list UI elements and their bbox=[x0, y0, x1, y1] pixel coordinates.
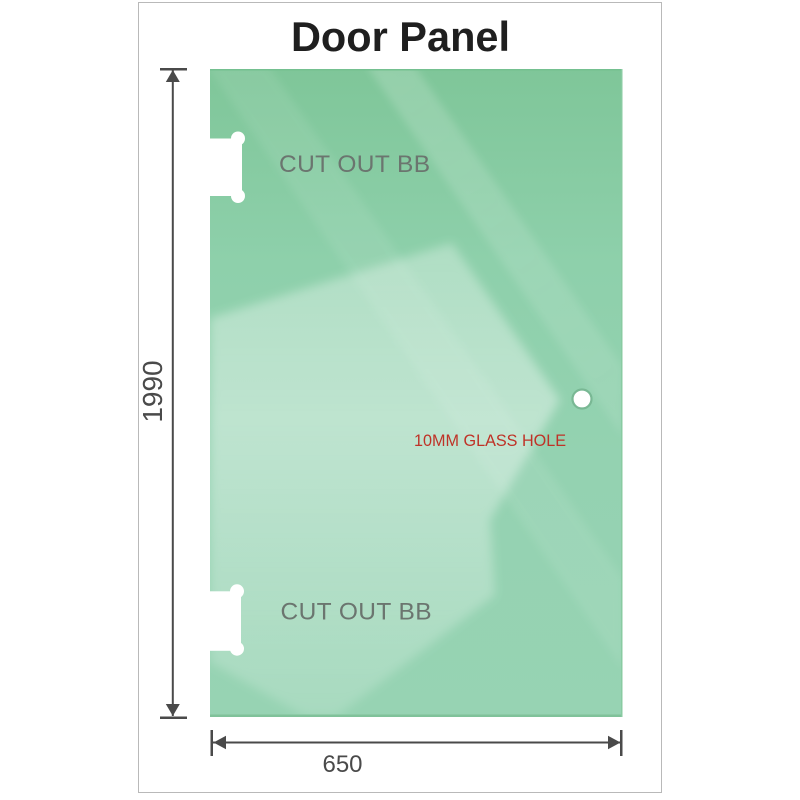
svg-text:10MM GLASS HOLE: 10MM GLASS HOLE bbox=[414, 432, 566, 450]
svg-text:CUT OUT BB: CUT OUT BB bbox=[279, 151, 430, 178]
svg-text:CUT OUT BB: CUT OUT BB bbox=[281, 599, 432, 626]
svg-text:1990: 1990 bbox=[137, 360, 168, 422]
svg-text:Door Panel: Door Panel bbox=[291, 13, 510, 60]
svg-text:650: 650 bbox=[322, 751, 362, 778]
